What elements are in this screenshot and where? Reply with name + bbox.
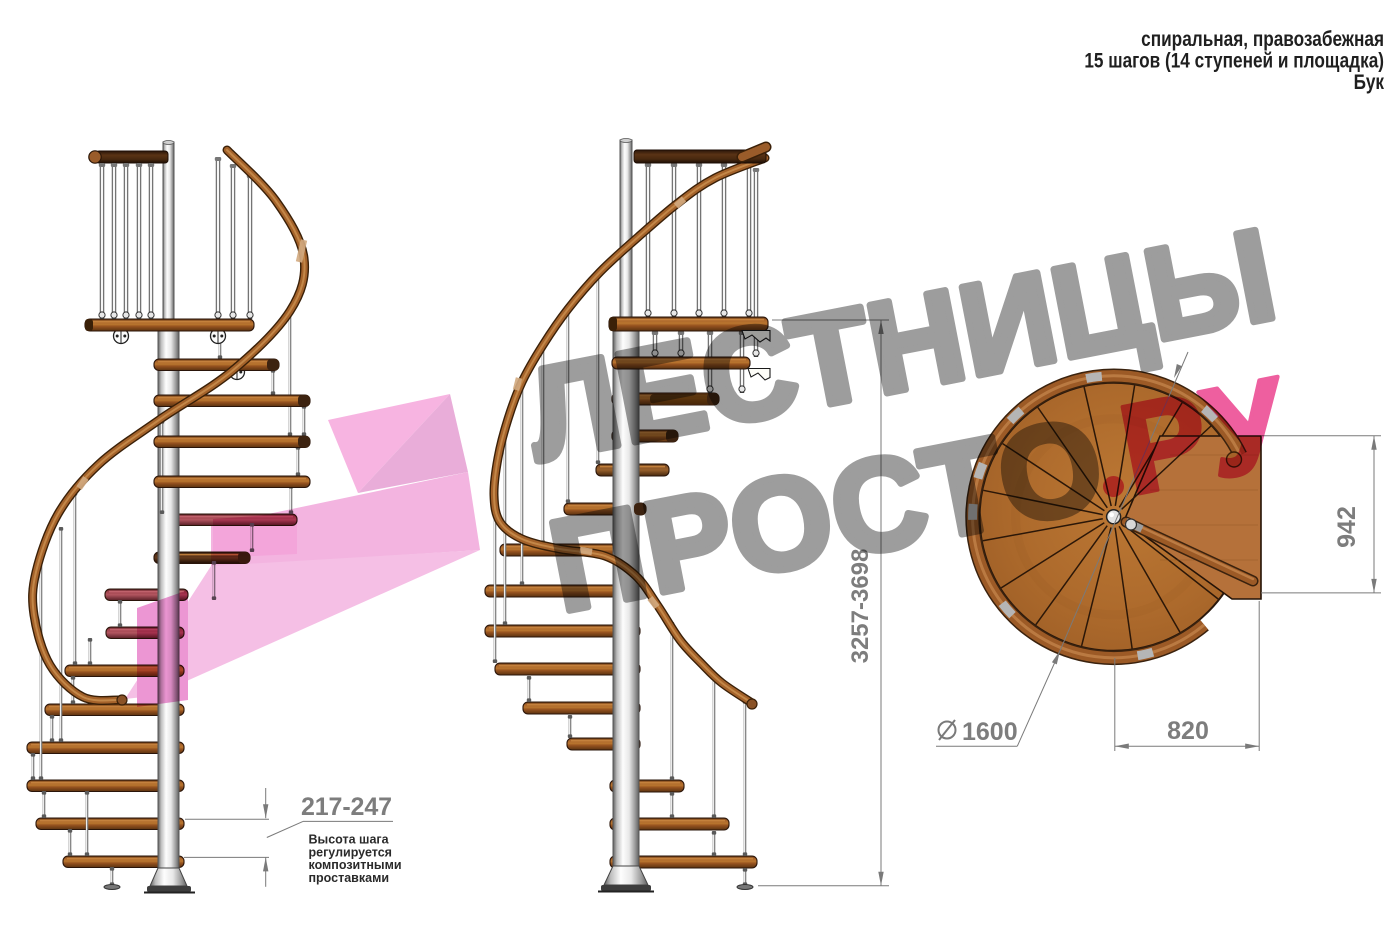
- svg-text:820: 820: [1167, 717, 1209, 745]
- svg-text:1600: 1600: [962, 718, 1018, 746]
- svg-text:Бук: Бук: [1354, 72, 1385, 95]
- svg-text:проставками: проставками: [309, 871, 390, 885]
- svg-text:942: 942: [1333, 506, 1361, 548]
- svg-text:спиральная, правозабежная: спиральная, правозабежная: [1141, 29, 1384, 52]
- svg-text:217-247: 217-247: [301, 793, 392, 821]
- svg-text:РУ: РУ: [1109, 350, 1301, 522]
- svg-text:15 шагов (14 ступеней и площад: 15 шагов (14 ступеней и площадка): [1084, 50, 1384, 73]
